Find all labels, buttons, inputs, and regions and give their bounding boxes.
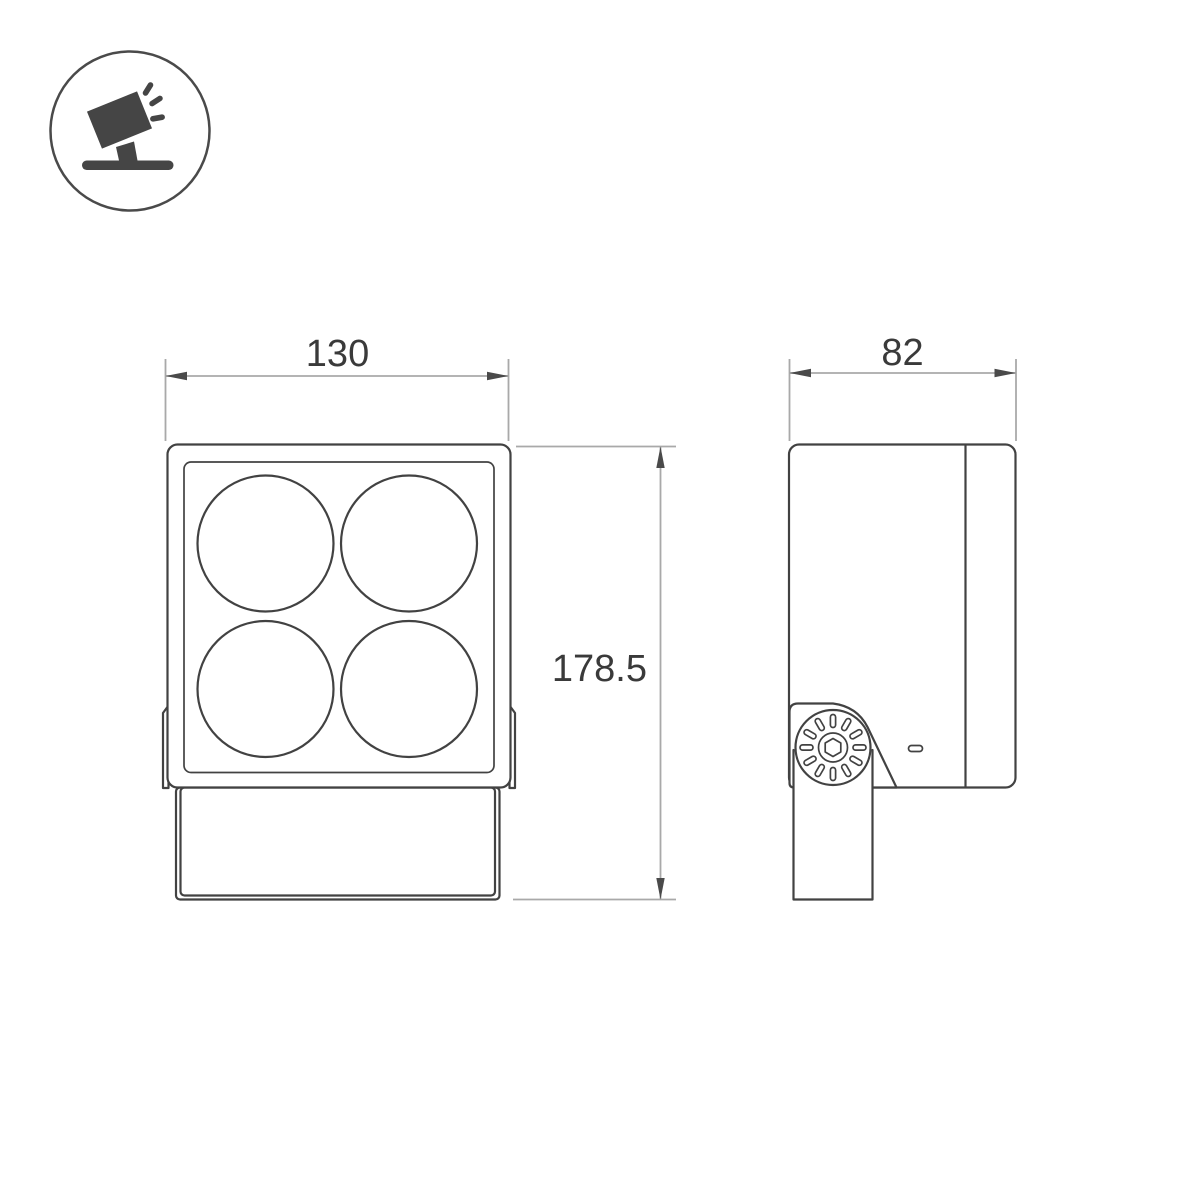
adjustment-knob bbox=[796, 710, 871, 785]
arrowhead-left bbox=[790, 369, 812, 377]
front-view bbox=[163, 445, 515, 900]
arrowhead-left bbox=[166, 372, 188, 380]
floodlight-dimension-drawing: 130 82 178.5 bbox=[0, 0, 1200, 1200]
dimension-front-width: 130 bbox=[166, 333, 509, 441]
arrowhead-right bbox=[995, 369, 1017, 377]
technical-drawing-page: 130 82 178.5 bbox=[0, 0, 1200, 1200]
arrowhead-top bbox=[656, 447, 664, 469]
dimension-label-side-depth: 82 bbox=[881, 332, 923, 374]
dimension-overall-height: 178.5 bbox=[513, 447, 676, 900]
dimension-label-overall-height: 178.5 bbox=[552, 648, 647, 690]
dimension-side-depth: 82 bbox=[790, 332, 1017, 441]
arrowhead-right bbox=[487, 372, 509, 380]
floodlight-category-icon bbox=[51, 52, 210, 211]
knob-hub bbox=[819, 733, 848, 762]
floodlight-base-icon bbox=[82, 161, 174, 171]
side-view bbox=[789, 445, 1016, 900]
dimension-label-front-width: 130 bbox=[306, 333, 369, 375]
mounting-base-inner bbox=[181, 788, 496, 896]
arrowhead-bottom bbox=[656, 878, 664, 900]
